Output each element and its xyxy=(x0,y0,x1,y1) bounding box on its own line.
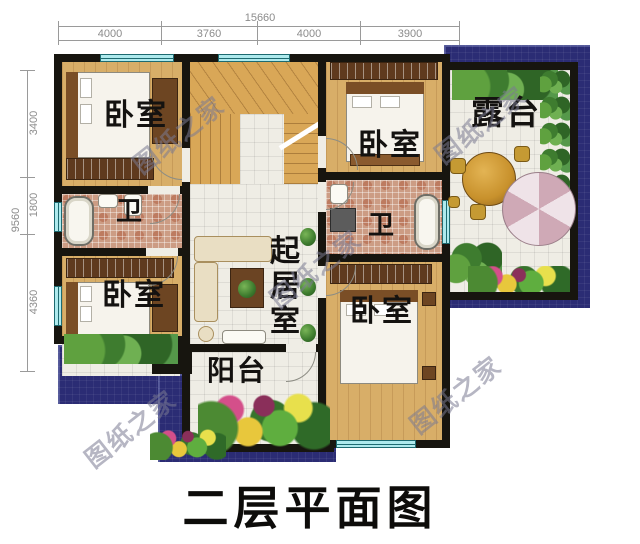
potted-plant xyxy=(300,324,316,342)
dimension-line xyxy=(58,26,460,27)
dimension-segment: 4000 xyxy=(284,28,334,40)
potted-plant xyxy=(300,228,316,246)
door-opening xyxy=(286,344,316,352)
dimension-tick xyxy=(20,177,35,178)
wall xyxy=(326,172,442,180)
terrace-chair xyxy=(448,196,460,208)
dimension-top-total: 15660 xyxy=(235,12,285,24)
dimension-segment: 4360 xyxy=(28,282,40,322)
window xyxy=(336,440,416,448)
potted-plant xyxy=(238,280,256,298)
dimension-segment: 1800 xyxy=(28,185,40,225)
room-label-bathroom-right: 卫 xyxy=(366,212,398,239)
dimension-segment: 3760 xyxy=(184,28,234,40)
wardrobe xyxy=(330,62,438,80)
terrace-flower-bed xyxy=(468,266,570,292)
bed-headboard xyxy=(346,82,424,94)
window xyxy=(54,202,62,232)
dimension-tick xyxy=(20,70,35,71)
patio-umbrella xyxy=(502,172,576,246)
page-title: 二层平面图 xyxy=(150,472,470,538)
side-table xyxy=(198,326,214,342)
dimension-tick xyxy=(20,234,35,235)
dimension-line xyxy=(58,40,460,41)
nightstand xyxy=(422,366,436,380)
door-opening xyxy=(182,148,190,182)
stairs-landing xyxy=(240,114,284,184)
room-label-bedroom-top-right: 卧室 xyxy=(350,130,430,162)
dimension-tick xyxy=(20,371,35,372)
door-opening xyxy=(318,182,326,212)
dimension-tick xyxy=(58,21,59,45)
dimension-tick xyxy=(459,21,460,45)
window xyxy=(54,286,62,326)
balcony-flower-bed xyxy=(150,424,226,460)
room-label-balcony: 阳台 xyxy=(204,356,270,385)
tv-cabinet xyxy=(222,330,266,344)
dimension-segment: 4000 xyxy=(85,28,135,40)
floor-plan-page: 15660 4000 3760 4000 3900 9560 3400 1800… xyxy=(0,0,640,544)
sofa xyxy=(194,236,272,262)
dimension-tick xyxy=(161,21,162,45)
pillow xyxy=(80,78,92,98)
room-label-bedroom-bottom-left: 卧室 xyxy=(94,280,174,312)
pillow xyxy=(352,96,372,108)
pillow xyxy=(80,286,92,302)
window xyxy=(100,54,174,62)
walkway-shrubs xyxy=(64,334,178,364)
door-opening xyxy=(318,136,326,168)
window xyxy=(218,54,290,62)
bed-headboard xyxy=(66,72,78,158)
bathtub xyxy=(414,194,440,250)
pillow xyxy=(380,96,400,108)
dimension-segment: 3400 xyxy=(28,103,40,143)
pillow xyxy=(80,104,92,124)
bathtub xyxy=(64,196,94,246)
terrace-wall xyxy=(442,292,578,300)
terrace-wall xyxy=(442,62,578,70)
dimension-segment: 3900 xyxy=(385,28,435,40)
dimension-tick xyxy=(257,21,258,45)
sofa xyxy=(194,262,218,322)
terrace-wall xyxy=(570,62,578,300)
door-opening xyxy=(148,186,180,194)
room-label-bathroom-left: 卫 xyxy=(114,198,146,225)
dimension-tick xyxy=(360,21,361,45)
room-label-bedroom-bottom-right: 卧室 xyxy=(342,296,422,328)
nightstand xyxy=(422,292,436,306)
terrace-chair xyxy=(514,146,530,162)
pillow xyxy=(80,306,92,322)
bed-headboard xyxy=(66,282,78,336)
door-opening xyxy=(146,248,178,256)
terrace-chair xyxy=(470,204,486,220)
